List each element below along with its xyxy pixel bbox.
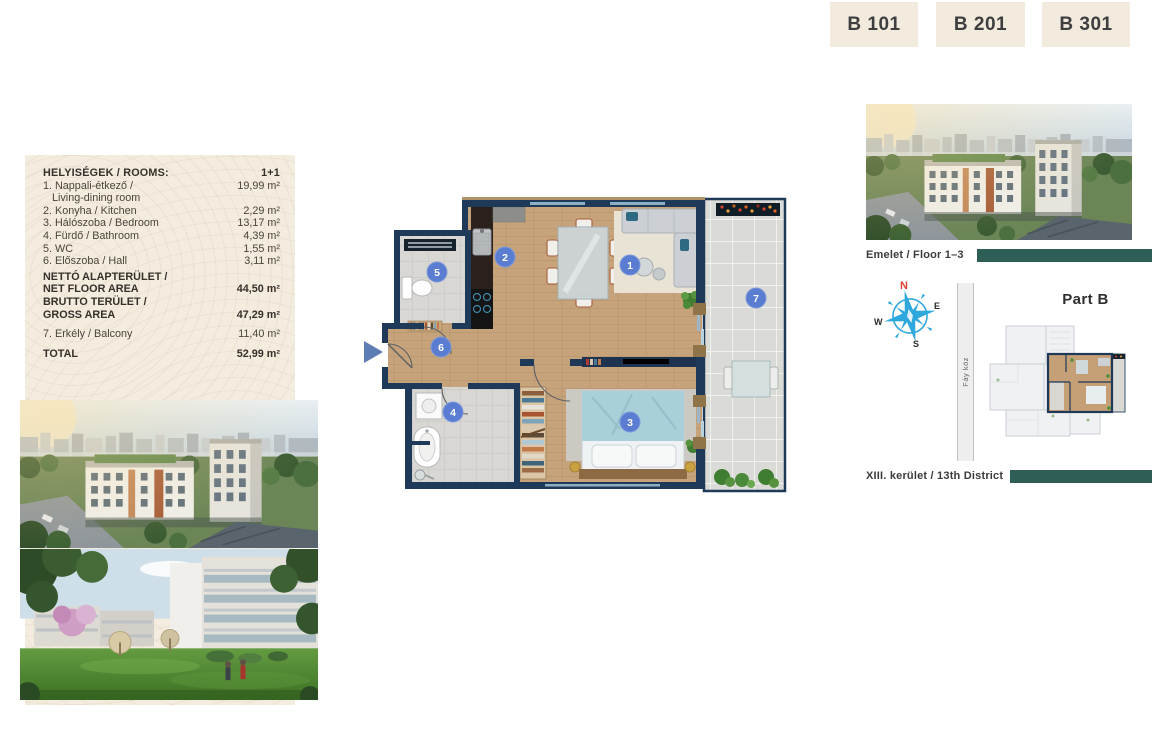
total-value: 52,99 m² bbox=[237, 348, 280, 361]
building-aerial-photo-small bbox=[866, 104, 1132, 240]
row-value: 13,17 m² bbox=[237, 217, 280, 230]
net-value: 44,50 m² bbox=[237, 283, 280, 296]
key-plan-highlight bbox=[1048, 354, 1125, 412]
room-number-4: 4 bbox=[443, 402, 463, 422]
unit-type: 1+1 bbox=[261, 167, 280, 180]
net-area-row: NETTÓ ALAPTERÜLET / NET FLOOR AREA 44,50… bbox=[43, 271, 280, 296]
row-value: 11,40 m² bbox=[238, 328, 280, 341]
balcony-table bbox=[732, 361, 770, 397]
compass-n: N bbox=[900, 280, 908, 292]
floor-plan: 1 2 3 4 5 6 7 bbox=[380, 197, 788, 494]
room-number-7: 7 bbox=[746, 288, 766, 308]
vent-grille bbox=[404, 239, 456, 251]
row-label: 3. Hálószoba / Bedroom bbox=[43, 217, 159, 230]
svg-text:3: 3 bbox=[627, 417, 633, 429]
svg-text:5: 5 bbox=[434, 267, 440, 279]
table-row: 5. WC 1,55 m² bbox=[43, 243, 280, 256]
row-label: 1. Nappali-étkező / bbox=[43, 180, 133, 192]
row-label: 4. Fürdő / Bathroom bbox=[43, 230, 139, 243]
balcony-chair bbox=[724, 367, 732, 389]
compass-s: S bbox=[913, 339, 919, 349]
tab-b101[interactable]: B 101 bbox=[830, 2, 918, 47]
part-label: Part B bbox=[1038, 291, 1133, 308]
floor-caption-bar bbox=[977, 249, 1152, 262]
room-number-5: 5 bbox=[427, 262, 447, 282]
gross-label-hu: BRUTTO TERÜLET / bbox=[43, 296, 147, 308]
svg-text:7: 7 bbox=[753, 293, 759, 305]
tv bbox=[623, 359, 669, 364]
wardrobe bbox=[520, 387, 546, 479]
courtyard-photo bbox=[20, 549, 318, 700]
row-label: 2. Konyha / Kitchen bbox=[43, 205, 137, 218]
room-number-2: 2 bbox=[495, 247, 515, 267]
gross-label-en: GROSS AREA bbox=[43, 309, 115, 321]
district-caption: XIII. kerület / 13th District bbox=[866, 470, 1003, 482]
net-label-hu: NETTÓ ALAPTERÜLET / bbox=[43, 271, 167, 283]
svg-text:4: 4 bbox=[450, 407, 456, 419]
bed bbox=[566, 389, 696, 479]
row-value: 19,99 m² bbox=[237, 180, 280, 193]
sofa bbox=[614, 209, 700, 293]
room-number-1: 1 bbox=[620, 255, 640, 275]
table-title: HELYISÉGEK / ROOMS: bbox=[43, 167, 169, 180]
room-number-6: 6 bbox=[431, 337, 451, 357]
balcony-row: 7. Erkély / Balcony 11,40 m² bbox=[43, 328, 280, 341]
table-row: 2. Konyha / Kitchen 2,29 m² bbox=[43, 205, 280, 218]
table-row: 3. Hálószoba / Bedroom 13,17 m² bbox=[43, 217, 280, 230]
balcony bbox=[704, 199, 785, 491]
building-aerial-photo bbox=[20, 400, 318, 548]
row-value: 1,55 m² bbox=[243, 243, 280, 256]
gross-area-row: BRUTTO TERÜLET / GROSS AREA 47,29 m² bbox=[43, 296, 280, 321]
row-value: 3,11 m² bbox=[244, 255, 280, 268]
svg-text:6: 6 bbox=[438, 342, 444, 354]
row-label: 7. Erkély / Balcony bbox=[43, 328, 132, 341]
tv-console bbox=[582, 357, 696, 367]
gross-value: 47,29 m² bbox=[237, 309, 280, 322]
street-label: Fáy köz bbox=[961, 357, 970, 387]
table-row: 4. Fürdő / Bathroom 4,39 m² bbox=[43, 230, 280, 243]
svg-text:2: 2 bbox=[502, 252, 508, 264]
compass-e: E bbox=[934, 301, 940, 311]
svg-text:1: 1 bbox=[627, 260, 633, 272]
washing-machine bbox=[416, 393, 442, 419]
table-row: 1. Nappali-étkező / Living-dining room 1… bbox=[43, 180, 280, 205]
total-row: TOTAL 52,99 m² bbox=[43, 348, 280, 361]
compass-icon: N E S W bbox=[872, 276, 948, 352]
bathtub bbox=[414, 427, 440, 467]
key-plan bbox=[978, 320, 1128, 442]
compass-w: W bbox=[874, 317, 883, 327]
table-header: HELYISÉGEK / ROOMS: 1+1 bbox=[43, 167, 280, 180]
tab-b301[interactable]: B 301 bbox=[1042, 2, 1130, 47]
row-label: 6. Előszoba / Hall bbox=[43, 255, 127, 268]
room-table: HELYISÉGEK / ROOMS: 1+1 1. Nappali-étkez… bbox=[25, 155, 295, 360]
bath-half-wall bbox=[412, 441, 430, 445]
total-label: TOTAL bbox=[43, 348, 78, 361]
net-label-en: NET FLOOR AREA bbox=[43, 283, 139, 295]
tab-b201[interactable]: B 201 bbox=[936, 2, 1025, 47]
table-row: 6. Előszoba / Hall 3,11 m² bbox=[43, 255, 280, 268]
district-caption-bar bbox=[1010, 470, 1152, 483]
room-number-3: 3 bbox=[620, 412, 640, 432]
bedside-lamp bbox=[570, 462, 580, 472]
row-label2: Living-dining room bbox=[43, 192, 140, 205]
row-value: 2,29 m² bbox=[243, 205, 280, 218]
row-value: 4,39 m² bbox=[243, 230, 280, 243]
bedside-lamp bbox=[685, 462, 695, 472]
floor-caption: Emelet / Floor 1–3 bbox=[866, 249, 964, 261]
flower-box bbox=[716, 203, 780, 216]
row-label: 5. WC bbox=[43, 243, 73, 256]
balcony-chair bbox=[770, 367, 778, 389]
street-bar: Fáy köz bbox=[957, 283, 974, 461]
